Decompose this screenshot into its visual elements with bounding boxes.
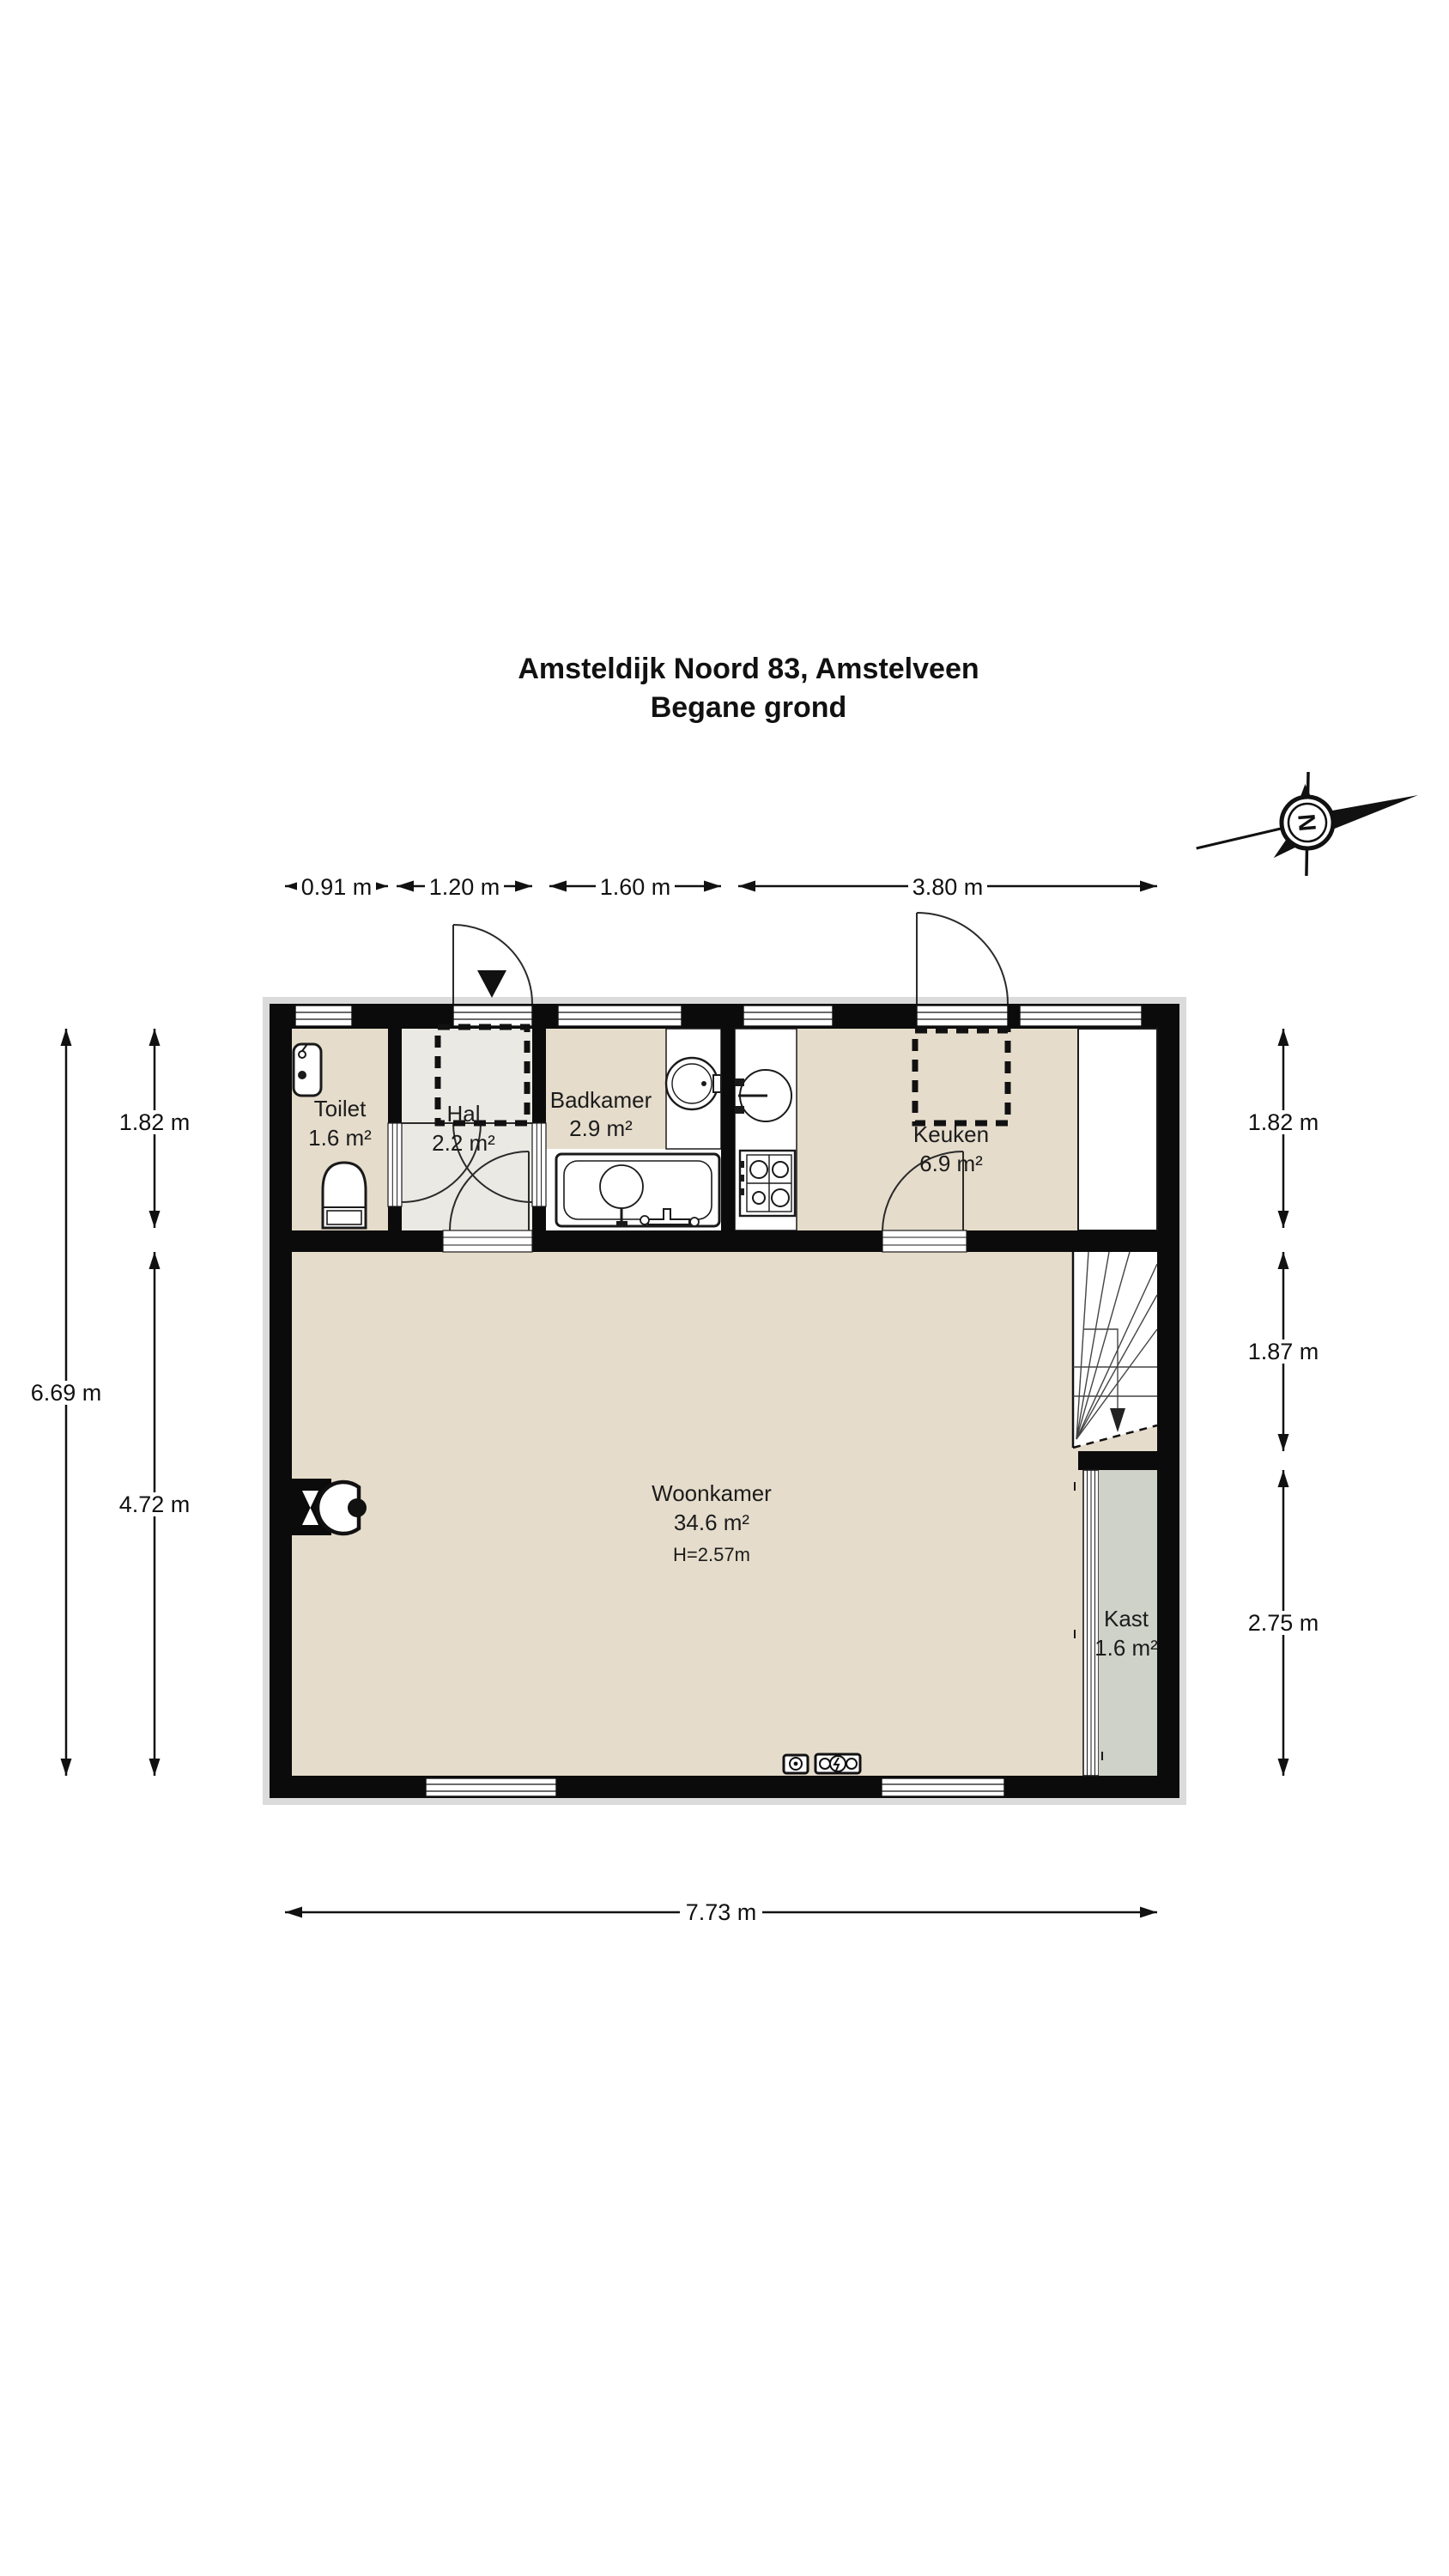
title-address: Amsteldijk Noord 83, Amstelveen (518, 653, 979, 685)
dim-left-outer: 6.69 m (25, 1029, 107, 1776)
svg-text:1.82 m: 1.82 m (1248, 1109, 1319, 1135)
window-bottom-right (882, 1778, 1004, 1796)
svg-text:1.6 m²: 1.6 m² (308, 1125, 372, 1151)
bathtub (556, 1154, 719, 1226)
svg-text:2.2 m²: 2.2 m² (432, 1130, 495, 1156)
dim-top-1: 1.20 m (429, 874, 500, 900)
door-opening-toilet (388, 1123, 402, 1206)
stove (740, 1151, 795, 1216)
svg-text:1.6 m²: 1.6 m² (1094, 1635, 1158, 1661)
svg-text:Woonkamer: Woonkamer (652, 1480, 772, 1506)
compass-north-letter: N (1293, 813, 1321, 833)
title-floor: Begane grond (651, 691, 847, 724)
svg-text:Toilet: Toilet (314, 1096, 367, 1121)
back-door-keuken (917, 913, 1008, 1004)
floorplan-page: Amsteldijk Noord 83, Amstelveen Begane g… (0, 0, 1449, 2576)
kast-sliding-doors (1083, 1470, 1099, 1776)
svg-text:4.72 m: 4.72 m (119, 1492, 191, 1517)
svg-text:H=2.57m: H=2.57m (673, 1544, 750, 1565)
svg-text:Kast: Kast (1104, 1606, 1149, 1631)
svg-text:7.73 m: 7.73 m (686, 1899, 757, 1925)
svg-text:6.9 m²: 6.9 m² (919, 1151, 983, 1176)
svg-text:6.69 m: 6.69 m (31, 1380, 102, 1406)
window-top-keuken-left (743, 1005, 833, 1026)
svg-text:1.82 m: 1.82 m (119, 1109, 191, 1135)
dim-top-0: 0.91 m (301, 874, 373, 900)
wall-topband-woonkamer (292, 1230, 1157, 1252)
dim-right-bottom: 2.75 m (1242, 1470, 1325, 1776)
window-top-toilet (295, 1005, 352, 1026)
keuken-closet-nook (1078, 1029, 1157, 1230)
svg-text:1.87 m: 1.87 m (1248, 1339, 1319, 1364)
dim-left-inner-top: 1.82 m (113, 1029, 196, 1228)
page-title: Amsteldijk Noord 83, Amstelveen Begane g… (518, 653, 979, 724)
window-top-badkamer (558, 1005, 682, 1026)
door-opening-hal-woonkamer (443, 1230, 532, 1252)
meter-icons (784, 1754, 860, 1773)
dim-bottom: 7.73 m (285, 1899, 1157, 1925)
wall-badkamer-keuken (721, 1029, 735, 1230)
svg-text:Badkamer: Badkamer (550, 1087, 652, 1113)
staircase (1073, 1252, 1157, 1448)
dim-right-top: 1.82 m (1242, 1029, 1325, 1228)
dim-top-row: 0.91 m 1.20 m 1.60 m 3.80 m (285, 874, 1157, 900)
floor-plan-svg: Amsteldijk Noord 83, Amstelveen Begane g… (0, 0, 1449, 2576)
svg-text:Keuken: Keuken (913, 1121, 989, 1147)
entrance-threshold-hal (453, 1005, 532, 1026)
window-top-keuken-right (1020, 1005, 1142, 1026)
svg-text:2.9 m²: 2.9 m² (569, 1115, 633, 1141)
svg-text:Hal: Hal (446, 1101, 480, 1127)
wall-kast-top (1078, 1451, 1157, 1470)
dim-top-3: 3.80 m (912, 874, 984, 900)
dim-top-2: 1.60 m (600, 874, 671, 900)
compass-north-indicator: N (1189, 759, 1427, 889)
door-opening-keuken-woonkamer (882, 1230, 967, 1252)
svg-text:34.6 m²: 34.6 m² (674, 1510, 749, 1535)
wood-stove (318, 1482, 367, 1534)
toilet-hand-basin (294, 1044, 321, 1096)
door-threshold-keuken (917, 1005, 1008, 1026)
entrance-arrow-icon (477, 970, 506, 998)
toilet-bowl (323, 1163, 366, 1228)
window-bottom-left (426, 1778, 556, 1796)
svg-text:2.75 m: 2.75 m (1248, 1610, 1319, 1636)
door-opening-badkamer (532, 1123, 546, 1206)
dim-left-inner-bottom: 4.72 m (113, 1252, 196, 1776)
dim-right-middle: 1.87 m (1242, 1252, 1325, 1451)
